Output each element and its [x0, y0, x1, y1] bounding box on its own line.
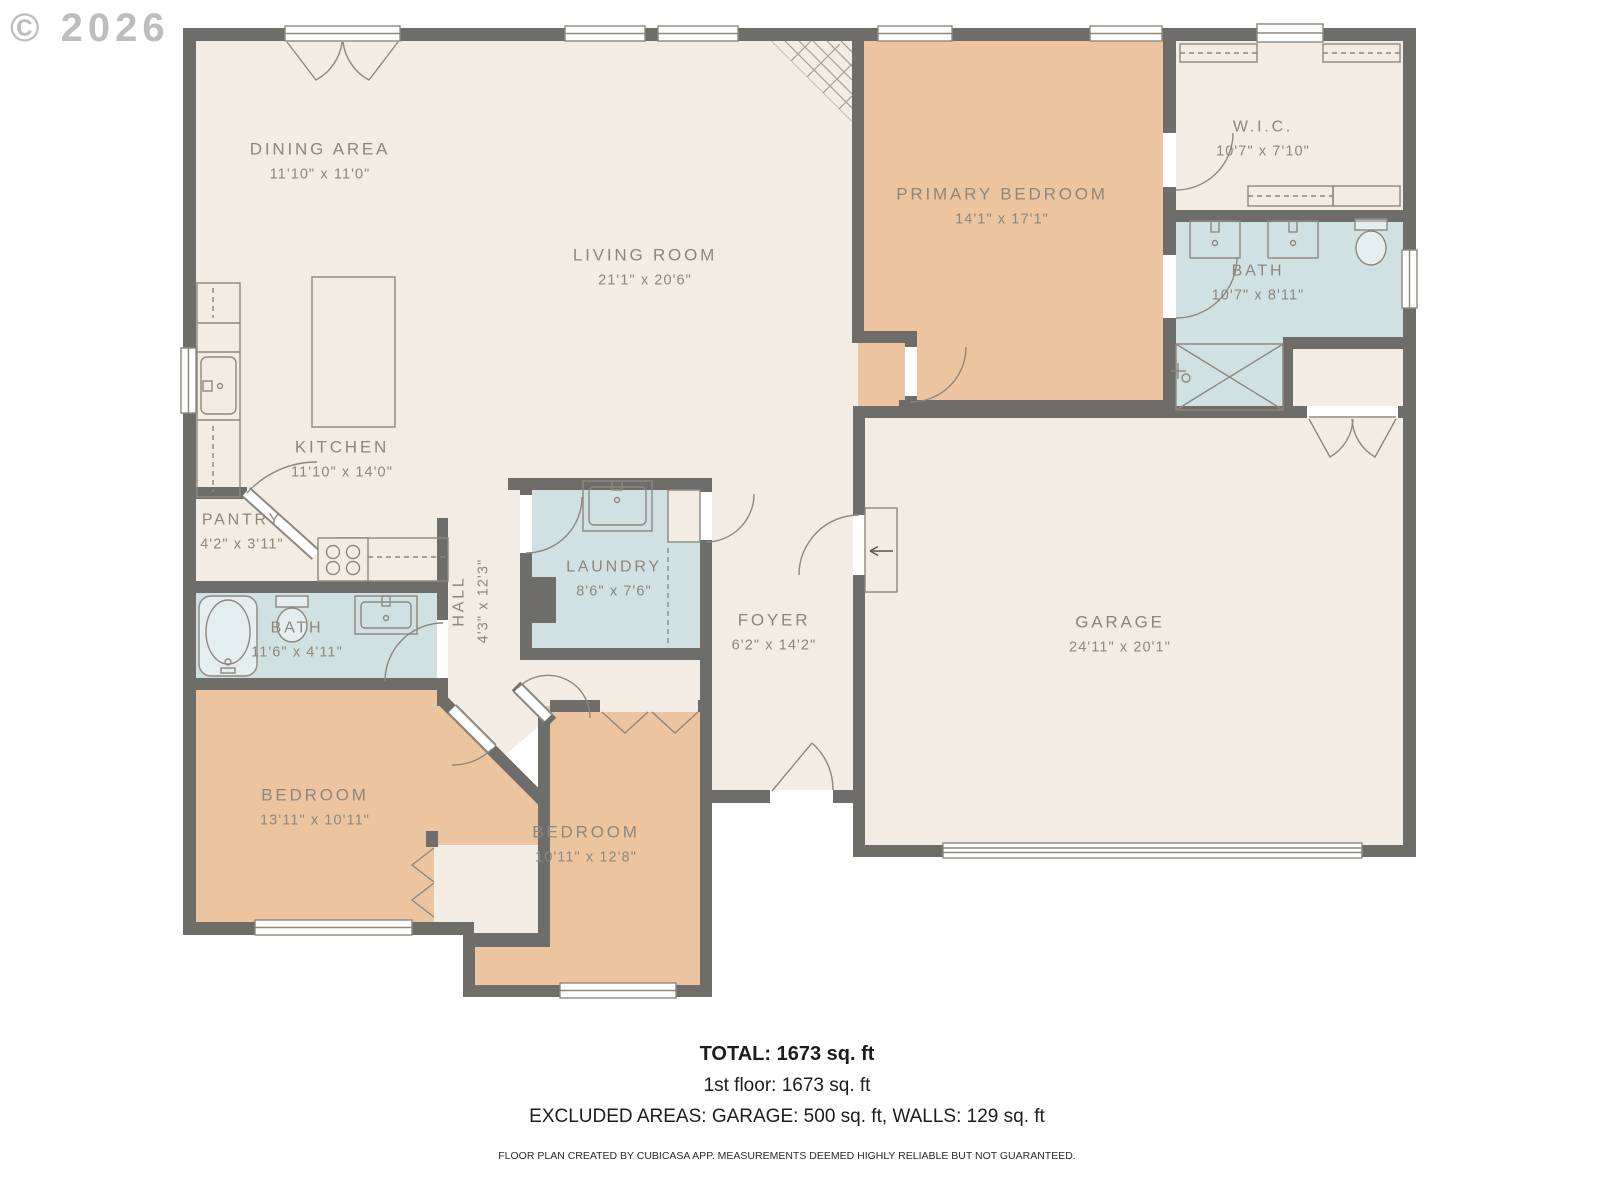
total-area: TOTAL: 1673 sq. ft: [237, 1043, 1337, 1066]
room-label-bedroom-1: BEDROOM 13'11" x 10'11": [260, 786, 370, 829]
room-dims: 10'7" x 7'10": [1216, 144, 1310, 160]
room-label-garage: GARAGE 24'11" x 20'1": [1069, 613, 1171, 656]
room-dims: 11'10" x 11'0": [250, 167, 390, 183]
room-dims: 6'2" x 14'2": [732, 638, 817, 654]
window-living-1: [565, 26, 645, 41]
excluded-areas: EXCLUDED AREAS: GARAGE: 500 sq. ft, WALL…: [237, 1106, 1337, 1128]
room-label-pantry: PANTRY 4'2" x 3'11": [200, 512, 284, 553]
window-bedroom-2: [560, 983, 676, 998]
area-bed2-closet: [550, 654, 706, 706]
room-dims: 11'10" x 14'0": [291, 465, 393, 481]
room-name: LAUNDRY: [566, 559, 662, 577]
window-primary-1: [878, 26, 952, 41]
room-name: BATH: [1212, 263, 1305, 281]
room-label-living-room: LIVING ROOM 21'1" x 20'6": [573, 246, 717, 289]
room-name: KITCHEN: [291, 438, 393, 458]
room-name: LIVING ROOM: [573, 246, 717, 266]
area-foyer: [700, 406, 865, 803]
room-name: DINING AREA: [250, 140, 390, 160]
window-kitchen: [181, 348, 196, 413]
window-wic: [1257, 24, 1323, 42]
room-dims: 21'1" x 20'6": [573, 273, 717, 289]
room-name: PRIMARY BEDROOM: [896, 185, 1107, 205]
window-primary-2: [1090, 26, 1162, 41]
room-dims: 8'6" x 7'6": [566, 584, 662, 600]
room-label-bedroom-2: BEDROOM 10'11" x 12'8": [532, 823, 639, 866]
summary-block: TOTAL: 1673 sq. ft 1st floor: 1673 sq. f…: [237, 1043, 1337, 1162]
room-label-bath-hall: BATH 11'6" x 4'11": [251, 620, 343, 661]
room-name: GARAGE: [1069, 613, 1171, 633]
window-bedroom-1: [255, 920, 412, 935]
disclaimer: FLOOR PLAN CREATED BY CUBICASA APP. MEAS…: [237, 1150, 1337, 1162]
room-dims: 10'7" x 8'11": [1212, 288, 1305, 304]
first-floor-area: 1st floor: 1673 sq. ft: [237, 1075, 1337, 1097]
room-dims: 4'2" x 3'11": [200, 537, 284, 553]
room-dims: 10'11" x 12'8": [532, 850, 639, 866]
room-dims: 13'11" x 10'11": [260, 813, 370, 829]
room-label-kitchen: KITCHEN 11'10" x 14'0": [291, 438, 393, 481]
room-name: BEDROOM: [260, 786, 370, 806]
copyright-watermark: © 2026: [10, 6, 170, 51]
room-name: BATH: [251, 620, 343, 638]
toilet-primary-bath: [1355, 219, 1387, 265]
room-label-laundry: LAUNDRY 8'6" x 7'6": [566, 559, 662, 600]
foyer-closet-box: [668, 490, 700, 542]
floor-plan-svg: [0, 0, 1600, 1200]
room-label-bath-primary: BATH 10'7" x 8'11": [1212, 263, 1305, 304]
room-label-primary-bedroom: PRIMARY BEDROOM 14'1" x 17'1": [896, 185, 1107, 228]
room-label-foyer: FOYER 6'2" x 14'2": [732, 611, 817, 654]
room-dims: 24'11" x 20'1": [1069, 640, 1171, 656]
window-bath-primary: [1402, 250, 1417, 308]
room-dims: 4'3" x 12'3": [476, 559, 492, 644]
room-dims: 11'6" x 4'11": [251, 645, 343, 661]
room-dims: 14'1" x 17'1": [896, 212, 1107, 228]
window-living-2: [658, 26, 738, 41]
room-label-wic: W.I.C. 10'7" x 7'10": [1216, 119, 1310, 160]
garage-door: [943, 843, 1362, 858]
room-name: HALL: [451, 559, 469, 644]
room-label-hall: HALL 4'3" x 12'3": [451, 559, 492, 644]
area-bed1-closet: [434, 845, 538, 933]
room-name: BEDROOM: [532, 823, 639, 843]
room-name: FOYER: [732, 611, 817, 631]
bathtub: [199, 596, 257, 676]
room-name: W.I.C.: [1216, 119, 1310, 137]
room-name: PANTRY: [200, 512, 284, 530]
room-label-dining-area: DINING AREA 11'10" x 11'0": [250, 140, 390, 183]
stove: [318, 538, 368, 581]
